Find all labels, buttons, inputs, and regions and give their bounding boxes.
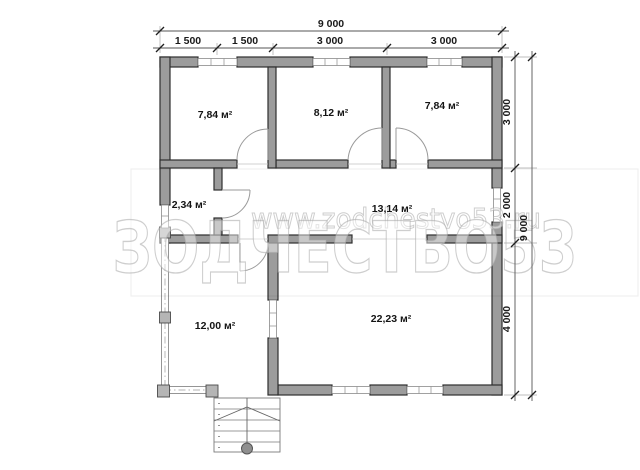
watermark-brand: ЗОДЧЕСТВО53 bbox=[113, 207, 578, 289]
window-veranda-divider bbox=[270, 300, 277, 338]
dim-top-seg-1: 1 500 bbox=[175, 35, 201, 47]
wall-segment bbox=[370, 385, 407, 395]
wall-segment bbox=[428, 160, 502, 168]
room-label-veranda: 12,00 м² bbox=[195, 320, 236, 332]
floor-plan-screenshot: www.zodchestvo53.ru ЗОДЧЕСТВО53 7,84 м² … bbox=[0, 0, 640, 470]
wall-segment bbox=[382, 67, 390, 168]
wall-segment bbox=[268, 67, 276, 168]
wall-segment bbox=[160, 160, 237, 168]
wall-segment bbox=[276, 160, 348, 168]
wall-segment bbox=[350, 57, 427, 67]
wall-segment bbox=[214, 168, 222, 190]
wall-segment bbox=[278, 385, 332, 395]
veranda-post bbox=[206, 385, 218, 397]
window-top-2 bbox=[313, 59, 350, 66]
room-label-bedroom-2: 8,12 м² bbox=[314, 107, 349, 119]
window-top-1 bbox=[198, 59, 237, 66]
dim-top-seg-3: 3 000 bbox=[317, 35, 343, 47]
window-bottom-2 bbox=[407, 387, 443, 394]
wall-segment bbox=[237, 57, 313, 67]
door-bedroom-3 bbox=[396, 128, 428, 164]
room-label-vestibule: 2,34 м² bbox=[172, 199, 207, 211]
window-bottom-1 bbox=[332, 387, 370, 394]
wall-segment bbox=[443, 385, 502, 395]
window-top-3 bbox=[427, 59, 462, 66]
room-label-living: 22,23 м² bbox=[371, 313, 412, 325]
door-bedroom-2 bbox=[348, 128, 382, 164]
dim-top-seg-4: 3 000 bbox=[431, 35, 457, 47]
veranda-post bbox=[158, 385, 170, 397]
dim-right-seg-3: 4 000 bbox=[501, 306, 513, 332]
dim-top-total: 9 000 bbox=[318, 18, 344, 30]
room-label-bedroom-3: 7,84 м² bbox=[425, 100, 460, 112]
entrance-stairs bbox=[214, 398, 280, 454]
stairs-start-marker bbox=[242, 443, 253, 454]
dim-right-total: 9 000 bbox=[518, 215, 530, 241]
veranda-post bbox=[160, 312, 171, 323]
room-label-corridor: 13,14 м² bbox=[372, 203, 413, 215]
room-label-bedroom-1: 7,84 м² bbox=[198, 109, 233, 121]
watermark: www.zodchestvo53.ru ЗОДЧЕСТВО53 bbox=[113, 169, 639, 296]
door-bedroom-1 bbox=[237, 129, 268, 164]
wall-segment bbox=[390, 160, 396, 168]
wall-segment bbox=[268, 338, 278, 395]
dim-right-seg-1: 3 000 bbox=[501, 99, 513, 125]
dim-right-seg-2: 2 000 bbox=[501, 192, 513, 218]
dim-top-seg-2: 1 500 bbox=[232, 35, 258, 47]
floor-plan-drawing: www.zodchestvo53.ru ЗОДЧЕСТВО53 7,84 м² … bbox=[0, 0, 640, 470]
dimension-top: 9 000 1 500 1 500 3 000 3 000 bbox=[153, 18, 509, 55]
wall-segment bbox=[160, 57, 170, 205]
